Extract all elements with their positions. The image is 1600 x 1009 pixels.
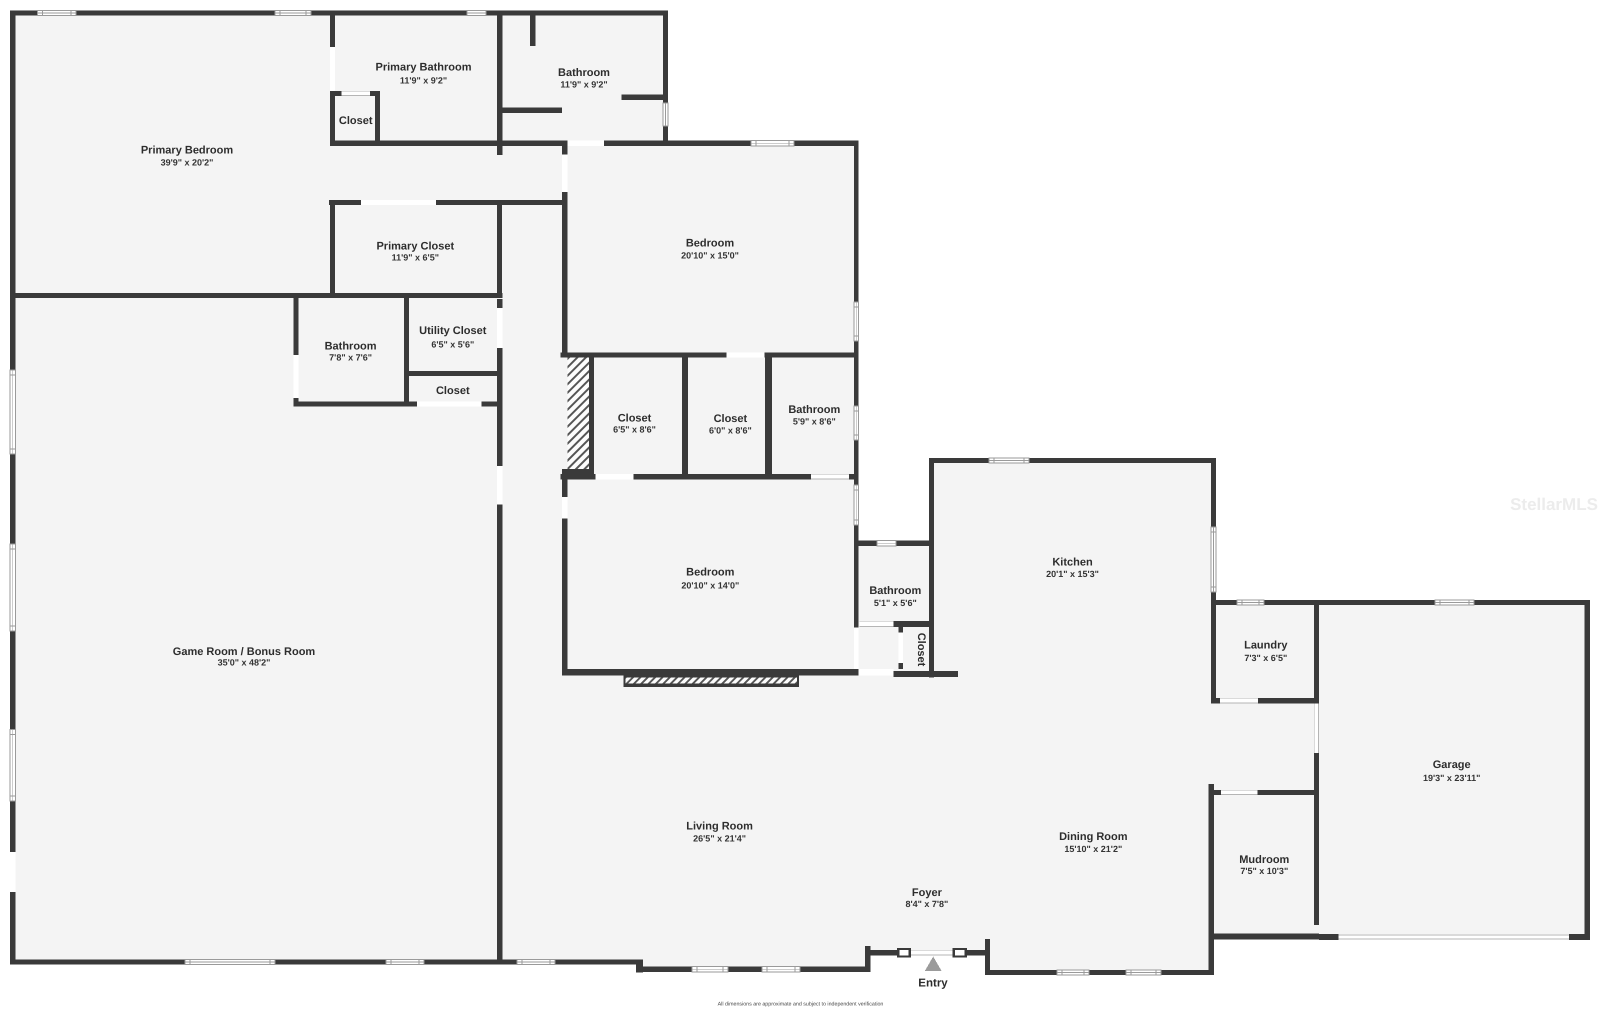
svg-text:7'8" x 7'6": 7'8" x 7'6" [329, 353, 372, 363]
svg-text:Entry: Entry [918, 978, 948, 990]
svg-text:20'10" x 14'0": 20'10" x 14'0" [681, 581, 739, 591]
svg-text:Bathroom: Bathroom [558, 67, 610, 79]
svg-text:6'5" x 5'6": 6'5" x 5'6" [431, 340, 474, 350]
svg-text:Foyer: Foyer [912, 887, 943, 899]
svg-text:5'9" x 8'6": 5'9" x 8'6" [793, 417, 836, 427]
svg-text:Primary Bathroom: Primary Bathroom [376, 62, 472, 74]
svg-text:11'9" x 9'2": 11'9" x 9'2" [560, 80, 607, 90]
svg-text:Primary Bedroom: Primary Bedroom [141, 145, 234, 157]
svg-text:Game Room / Bonus Room: Game Room / Bonus Room [173, 646, 316, 658]
svg-text:StellarMLS: StellarMLS [1510, 495, 1598, 514]
svg-text:Bathroom: Bathroom [869, 585, 921, 597]
svg-text:39'9" x 20'2": 39'9" x 20'2" [161, 158, 214, 168]
svg-text:19'3" x 23'11": 19'3" x 23'11" [1423, 773, 1480, 783]
svg-text:26'5" x 21'4": 26'5" x 21'4" [693, 834, 746, 844]
svg-text:7'3" x 6'5": 7'3" x 6'5" [1244, 653, 1287, 663]
svg-text:35'0" x 48'2": 35'0" x 48'2" [218, 658, 271, 668]
svg-text:8'4" x 7'8": 8'4" x 7'8" [905, 899, 948, 909]
svg-text:Closet: Closet [339, 115, 373, 127]
svg-text:All dimensions are approximate: All dimensions are approximate and subje… [718, 1002, 884, 1008]
svg-text:Dining Room: Dining Room [1059, 831, 1128, 843]
svg-text:Primary Closet: Primary Closet [376, 241, 454, 253]
svg-text:Closet: Closet [714, 413, 748, 425]
svg-text:Mudroom: Mudroom [1239, 854, 1289, 866]
svg-text:20'10" x 15'0": 20'10" x 15'0" [681, 251, 739, 261]
svg-text:Laundry: Laundry [1244, 640, 1288, 652]
svg-text:Kitchen: Kitchen [1052, 557, 1093, 569]
svg-text:15'10" x 21'2": 15'10" x 21'2" [1064, 844, 1122, 854]
svg-text:Bedroom: Bedroom [686, 238, 735, 250]
svg-text:Closet: Closet [436, 385, 470, 397]
svg-text:Bedroom: Bedroom [686, 567, 735, 579]
svg-text:Bathroom: Bathroom [788, 404, 840, 416]
svg-text:6'5" x 8'6": 6'5" x 8'6" [613, 425, 656, 435]
svg-text:7'5" x 10'3": 7'5" x 10'3" [1240, 866, 1288, 876]
svg-text:Garage: Garage [1433, 759, 1471, 771]
svg-text:Utility Closet: Utility Closet [419, 325, 487, 337]
svg-text:5'1" x 5'6": 5'1" x 5'6" [874, 598, 917, 608]
svg-text:Closet: Closet [915, 633, 927, 667]
svg-text:Living Room: Living Room [686, 821, 753, 833]
svg-text:11'9" x 9'2": 11'9" x 9'2" [400, 76, 447, 86]
svg-text:11'9" x 6'5": 11'9" x 6'5" [392, 253, 439, 263]
svg-text:20'1" x 15'3": 20'1" x 15'3" [1046, 569, 1099, 579]
svg-text:6'0" x 8'6": 6'0" x 8'6" [709, 426, 752, 436]
svg-text:Bathroom: Bathroom [325, 341, 377, 353]
svg-text:Closet: Closet [618, 413, 652, 425]
